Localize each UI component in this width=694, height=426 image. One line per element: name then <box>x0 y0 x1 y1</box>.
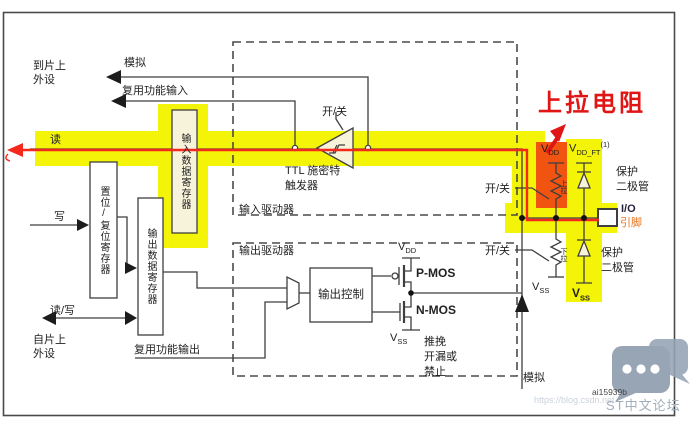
io-pin-pad <box>598 209 617 226</box>
pmos-label: P-MOS <box>416 267 455 280</box>
top-diode-label-1: 保护 <box>616 166 638 178</box>
ttl-label-2: 触发器 <box>285 180 318 192</box>
output-data-register-label: 输出数据寄存器 <box>138 200 163 333</box>
top-diode-label-2: 二极管 <box>616 181 649 193</box>
read-write-label: 读/写 <box>50 305 75 317</box>
pullup-tag-label: 上拉 <box>559 172 567 202</box>
pullup-onoff-label: 开/关 <box>485 183 510 195</box>
write-arrow <box>77 219 89 231</box>
output-driver-label: 输出驱动器 <box>239 245 294 257</box>
readwrite-right-arrow <box>125 311 137 325</box>
outputreg-to-mux-wire <box>163 272 287 288</box>
pushpull-label-2: 开漏或 <box>424 351 457 363</box>
input-driver-label: 输入驱动器 <box>239 204 294 216</box>
analog-bottom-label: 模拟 <box>523 372 545 384</box>
pullup-annotation-text: 上拉电阻 <box>538 90 646 116</box>
gate-wires <box>372 276 400 312</box>
ttl-label-1: TTL 施密特 <box>285 165 340 177</box>
input-data-register-label: 输入数据寄存器 <box>172 112 197 231</box>
vddft-label: VDD_FT(1) <box>569 141 610 157</box>
pulldown-vss-label: VSS <box>532 281 549 295</box>
io-pin-label-2: 引脚 <box>620 217 642 229</box>
schmitt-onoff-label: 开/关 <box>322 106 347 118</box>
bitset-to-output-wire <box>117 217 134 268</box>
pullup-vdd-label: VDD <box>541 143 559 157</box>
af-output-label: 复用功能输出 <box>134 344 200 356</box>
nmos-vss-label: VSS <box>390 332 407 346</box>
mux <box>287 277 299 309</box>
af-input-label: 复用功能输入 <box>122 85 188 97</box>
gpio-structure-diagram: 到片上 外设 模拟 复用功能输入 读 写 读/写 自片上 外设 输入数据寄存器 … <box>0 0 694 426</box>
watermark-url: https://blog.csdn.net <box>534 396 615 406</box>
nmos-label: N-MOS <box>416 304 456 317</box>
watermark-forum: ST中文论坛 <box>606 399 681 413</box>
from-periph-label-2: 外设 <box>33 348 55 360</box>
pulldown-switch-wire <box>515 250 549 261</box>
to-periph-label-1: 到片上 <box>33 60 66 72</box>
input-driver-box <box>233 42 517 215</box>
bottom-diode-label-2: 二极管 <box>601 262 634 274</box>
pmos-gate-bubble <box>392 273 398 279</box>
diode-vss-label: VSS <box>572 287 590 303</box>
output-control-label: 输出控制 <box>310 268 372 322</box>
pulldown-onoff-label: 开/关 <box>485 245 510 257</box>
pushpull-label-1: 推挽 <box>424 336 446 348</box>
pulldown-tag-label: 下拉 <box>559 240 567 270</box>
pushpull-label-3: 禁止 <box>424 366 446 378</box>
read-label: 读 <box>50 134 61 146</box>
analog-top-arrow <box>106 70 121 84</box>
pmos-vdd-label: VDD <box>398 241 416 255</box>
bitset-register-label: 置位/复位寄存器 <box>90 164 117 296</box>
read-arrow <box>7 143 23 157</box>
to-periph-label-2: 外设 <box>33 74 55 86</box>
from-periph-label-1: 自片上 <box>33 334 66 346</box>
bottom-diode-label-1: 保护 <box>601 247 623 259</box>
io-pin-label-1: I/O <box>621 203 636 215</box>
bitset-arrow <box>125 262 137 274</box>
analog-top-label: 模拟 <box>124 57 146 69</box>
output-driver-box <box>233 243 517 376</box>
write-label: 写 <box>54 211 65 223</box>
